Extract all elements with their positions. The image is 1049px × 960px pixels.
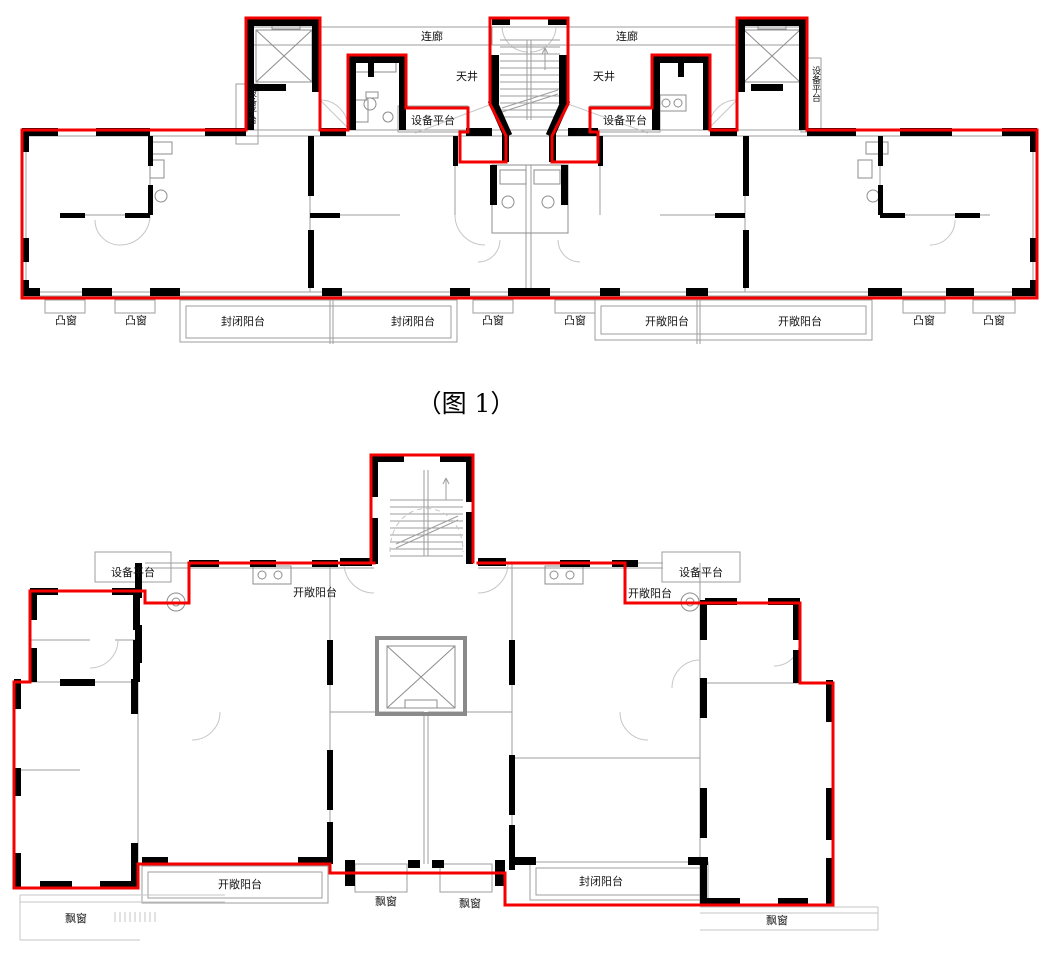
label-corridor-right: 连廊 [616, 29, 638, 43]
label-equip-left: 设备平台 [411, 113, 455, 127]
page-background [0, 0, 1049, 960]
label-lightwell-right: 天井 [593, 69, 615, 83]
label-bay-left: 飘窗 [65, 911, 87, 925]
label-bay-5: 凸窗 [913, 313, 935, 327]
floor-plans-canvas: 连廊 连廊 天井 天井 设备平台 设备平台 设备平台 设备平台 凸窗 凸窗 封闭… [0, 0, 1049, 960]
label-open-balcony-2: 开敞阳台 [778, 314, 822, 328]
label-bay-mid-1: 飘窗 [375, 894, 397, 908]
label-bay-1: 凸窗 [55, 313, 77, 327]
label-closed-balcony-2: 封闭阳台 [391, 314, 435, 328]
label-open-balcony-1: 开敞阳台 [645, 314, 689, 328]
label-bay-4: 凸窗 [564, 313, 586, 327]
floor-plan-sheet: 连廊 连廊 天井 天井 设备平台 设备平台 设备平台 设备平台 凸窗 凸窗 封闭… [0, 0, 1049, 960]
figure-caption: （图 1） [417, 389, 516, 418]
label-closed-balcony-bottom: 封闭阳台 [579, 874, 623, 888]
label-equip-left: 设备平台 [111, 565, 155, 579]
label-bay-3: 凸窗 [482, 313, 504, 327]
label-corridor-left: 连廊 [421, 29, 443, 43]
label-open-balcony-top-right: 开敞阳台 [628, 586, 672, 600]
label-equip-right: 设备平台 [679, 565, 723, 579]
label-bay-6: 凸窗 [983, 313, 1005, 327]
label-bay-mid-2: 飘窗 [459, 896, 481, 910]
label-bay-right: 飘窗 [766, 913, 788, 927]
label-lightwell-left: 天井 [456, 69, 478, 83]
walls-bottom-edge [22, 288, 1037, 296]
label-equip-left-vertical: 设备平台 [246, 88, 257, 125]
label-closed-balcony-1: 封闭阳台 [221, 314, 265, 328]
label-equip-right: 设备平台 [603, 113, 647, 127]
label-open-balcony-top-left: 开敞阳台 [293, 585, 337, 599]
label-open-balcony-bottom: 开敞阳台 [218, 877, 262, 891]
label-bay-2: 凸窗 [125, 313, 147, 327]
label-equip-right-vertical: 设备平台 [810, 66, 821, 103]
